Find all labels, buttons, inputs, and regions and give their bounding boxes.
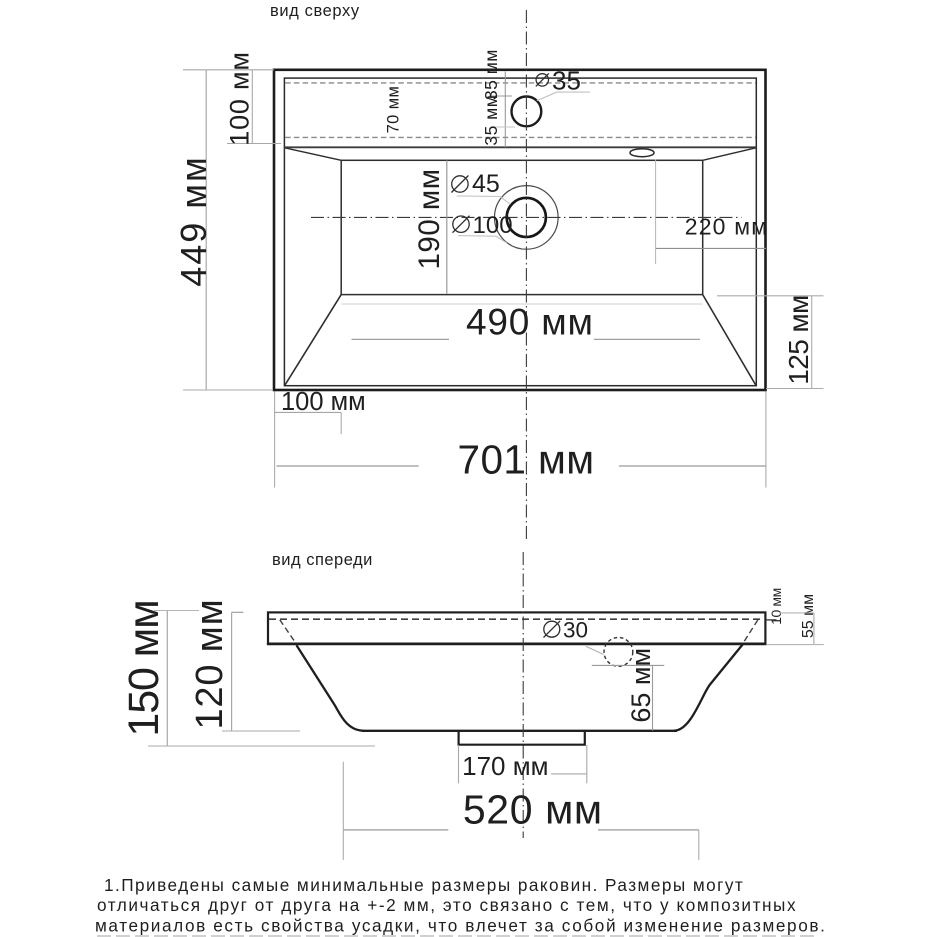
svg-text:100: 100: [473, 212, 513, 239]
svg-text:120 мм: 120 мм: [189, 598, 231, 729]
svg-text:220 мм: 220 мм: [685, 214, 769, 240]
svg-text:150 мм: 150 мм: [120, 600, 168, 736]
svg-text:35 мм: 35 мм: [481, 95, 501, 146]
svg-text:70 мм: 70 мм: [385, 86, 403, 134]
svg-text:100 мм: 100 мм: [225, 51, 255, 145]
svg-text:520 мм: 520 мм: [463, 786, 603, 832]
svg-text:100 мм: 100 мм: [281, 388, 366, 416]
svg-text:45: 45: [472, 170, 500, 198]
svg-text:125 мм: 125 мм: [783, 295, 814, 384]
svg-text:материалов есть свойства усадк: материалов есть свойства усадки, что вле…: [95, 916, 826, 936]
svg-text:35 мм: 35 мм: [481, 49, 501, 100]
svg-text:1.Приведены самые минимальные: 1.Приведены самые минимальные размеры ра…: [104, 875, 744, 895]
svg-text:449 мм: 449 мм: [173, 155, 214, 287]
svg-text:490 мм: 490 мм: [466, 302, 594, 343]
svg-text:вид спереди: вид спереди: [272, 551, 373, 569]
svg-text:вид сверху: вид сверху: [270, 2, 360, 20]
svg-text:30: 30: [563, 617, 588, 642]
svg-text:170 мм: 170 мм: [462, 751, 548, 781]
svg-text:65 мм: 65 мм: [626, 648, 656, 723]
svg-text:отличаться друг от друга на +-: отличаться друг от друга на +-2 мм, это …: [97, 895, 797, 915]
svg-text:701 мм: 701 мм: [458, 436, 595, 482]
svg-text:35: 35: [552, 66, 581, 96]
svg-text:190 мм: 190 мм: [413, 169, 446, 270]
